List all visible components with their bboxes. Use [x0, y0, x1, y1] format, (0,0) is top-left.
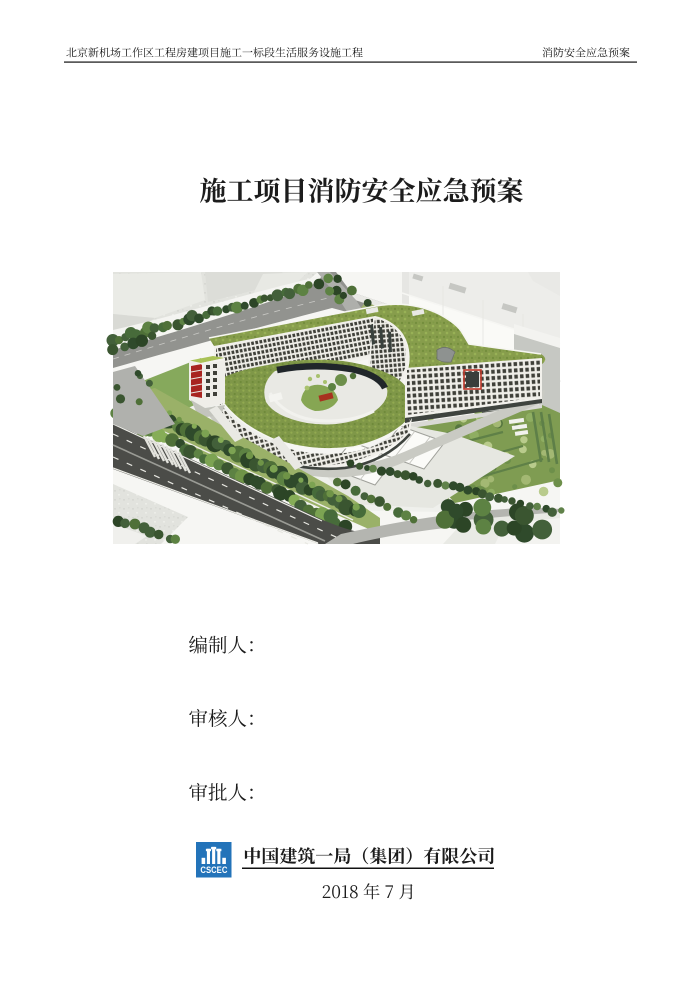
svg-text:CSCEC: CSCEC: [200, 865, 227, 875]
